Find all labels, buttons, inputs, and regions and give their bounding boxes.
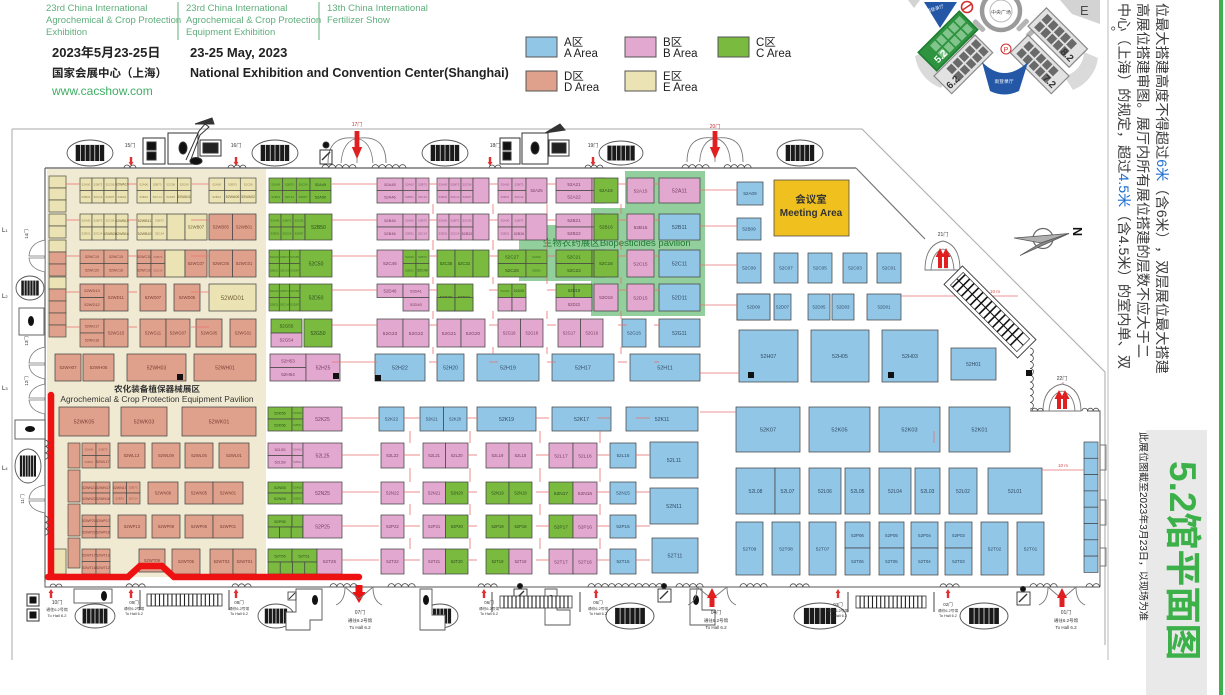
svg-text:52A00: 52A00 xyxy=(501,182,510,186)
svg-text:52A22: 52A22 xyxy=(567,195,581,200)
svg-text:14: 14 xyxy=(24,233,29,239)
svg-text:52WP13: 52WP13 xyxy=(124,524,141,529)
svg-text:52WH01: 52WH01 xyxy=(215,365,235,371)
svg-text:52B73: 52B73 xyxy=(94,219,103,223)
svg-text:52B31: 52B31 xyxy=(532,268,541,272)
svg-text:52D01: 52D01 xyxy=(878,305,891,310)
svg-text:52B31: 52B31 xyxy=(212,195,221,199)
svg-text:52L05: 52L05 xyxy=(851,489,865,495)
svg-text:52C40: 52C40 xyxy=(417,269,428,273)
svg-text:52B73: 52B73 xyxy=(129,486,138,490)
svg-text:52B73: 52B73 xyxy=(515,219,524,223)
svg-text:52D87: 52D87 xyxy=(166,195,175,199)
svg-text:52C15: 52C15 xyxy=(633,261,647,267)
svg-text:52D05: 52D05 xyxy=(813,305,826,310)
svg-text:52D22: 52D22 xyxy=(568,302,581,307)
svg-text:52WN05: 52WN05 xyxy=(191,491,208,496)
svg-text:52B73: 52B73 xyxy=(418,255,427,259)
svg-text:52C14: 52C14 xyxy=(129,497,138,501)
svg-text:52D25: 52D25 xyxy=(514,289,525,293)
svg-text:52B73: 52B73 xyxy=(154,255,163,259)
svg-text:11: 11 xyxy=(20,499,25,504)
svg-text:52L22: 52L22 xyxy=(386,453,399,458)
svg-text:National Exhibition and Conven: National Exhibition and Convention Cente… xyxy=(190,66,509,80)
svg-text:52A00: 52A00 xyxy=(82,219,91,223)
svg-text:52B31: 52B31 xyxy=(405,195,414,199)
svg-text:52A00: 52A00 xyxy=(293,486,302,490)
svg-text:52WT13: 52WT13 xyxy=(96,554,110,558)
svg-text:52P04: 52P04 xyxy=(918,533,931,538)
svg-text:52C22: 52C22 xyxy=(567,268,581,273)
svg-text:52WA10: 52WA10 xyxy=(177,195,191,199)
svg-text:52C16: 52C16 xyxy=(599,261,613,266)
svg-text:52C56: 52C56 xyxy=(463,182,472,186)
svg-text:52N21: 52N21 xyxy=(428,491,441,496)
svg-text:52D87: 52D87 xyxy=(106,195,115,199)
svg-text:19: 19 xyxy=(588,143,594,149)
svg-text:6.2: 6.2 xyxy=(1063,618,1070,623)
svg-text:B: B xyxy=(663,37,671,49)
svg-text:52B31: 52B31 xyxy=(439,232,448,236)
svg-text:52H22: 52H22 xyxy=(392,366,408,372)
svg-text:52WC11: 52WC11 xyxy=(137,255,151,259)
svg-text:52C14: 52C14 xyxy=(285,195,294,199)
svg-text:52G21: 52G21 xyxy=(442,331,457,337)
svg-text:52WL01: 52WL01 xyxy=(226,453,242,458)
svg-text:52A16: 52A16 xyxy=(599,188,613,193)
svg-text:52L21: 52L21 xyxy=(428,453,440,458)
svg-text:52B73: 52B73 xyxy=(283,219,292,223)
svg-text:52B31: 52B31 xyxy=(270,268,279,272)
svg-text:52C56: 52C56 xyxy=(106,219,115,223)
svg-text:52A15: 52A15 xyxy=(634,188,648,194)
svg-text:52A00: 52A00 xyxy=(82,182,91,186)
svg-text:08: 08 xyxy=(234,600,240,605)
svg-text:52G54: 52G54 xyxy=(280,338,294,343)
svg-text:23rd China International: 23rd China International xyxy=(46,3,147,14)
svg-text:52WT17: 52WT17 xyxy=(82,554,96,558)
svg-text:6.2: 6.2 xyxy=(713,618,720,623)
svg-text:52T15: 52T15 xyxy=(616,559,629,564)
svg-text:52WP21: 52WP21 xyxy=(82,519,96,523)
svg-text:52P06: 52P06 xyxy=(851,533,864,538)
svg-text:52L58: 52L58 xyxy=(274,459,286,464)
svg-text:52D07: 52D07 xyxy=(776,305,789,310)
svg-text:C: C xyxy=(756,37,764,49)
svg-text:52WC05: 52WC05 xyxy=(213,261,230,266)
svg-text:52L06: 52L06 xyxy=(818,489,832,495)
svg-text:52K17: 52K17 xyxy=(574,417,589,423)
svg-text:52D40: 52D40 xyxy=(410,302,423,307)
svg-text:52L15: 52L15 xyxy=(617,453,630,458)
svg-text:52L04: 52L04 xyxy=(888,489,902,495)
svg-text:52B73: 52B73 xyxy=(280,289,289,293)
svg-text:52N19: 52N19 xyxy=(491,491,504,496)
svg-text:52WG07: 52WG07 xyxy=(170,331,187,336)
svg-text:52B73: 52B73 xyxy=(515,182,524,186)
svg-text:52WN01: 52WN01 xyxy=(220,491,237,496)
svg-text:52WP20: 52WP20 xyxy=(82,531,96,535)
svg-text:13th China International: 13th China International xyxy=(327,3,428,14)
svg-text:52B73: 52B73 xyxy=(418,219,427,223)
svg-text:52A00: 52A00 xyxy=(501,219,510,223)
svg-text:52T11: 52T11 xyxy=(668,554,683,560)
svg-text:52G23: 52G23 xyxy=(383,331,398,337)
svg-text:52WT12: 52WT12 xyxy=(96,566,110,570)
svg-text:52C56: 52C56 xyxy=(290,289,299,293)
svg-text:52B31: 52B31 xyxy=(501,232,510,236)
svg-text:52B31: 52B31 xyxy=(293,460,302,464)
svg-text:52WP16: 52WP16 xyxy=(96,531,110,535)
svg-text:52WN18: 52WN18 xyxy=(96,497,110,501)
svg-text:52T18: 52T18 xyxy=(515,559,528,564)
svg-text:52WK03: 52WK03 xyxy=(134,420,155,426)
svg-text:52A00: 52A00 xyxy=(405,182,414,186)
svg-text:52H07: 52H07 xyxy=(761,354,777,360)
svg-text:23: 23 xyxy=(1137,540,1148,552)
svg-text:6.2: 6.2 xyxy=(54,607,60,612)
svg-text:03: 03 xyxy=(833,602,839,607)
svg-text:52WD01: 52WD01 xyxy=(221,296,245,302)
svg-text:Agrochemical & Crop Protection: Agrochemical & Crop Protection Equipment… xyxy=(60,394,254,404)
svg-text:52D87: 52D87 xyxy=(290,268,299,272)
svg-text:02: 02 xyxy=(943,602,949,607)
svg-text:09: 09 xyxy=(129,600,135,605)
svg-text:52WH05: 52WH05 xyxy=(90,365,108,370)
svg-text:52B45: 52B45 xyxy=(384,218,396,223)
svg-text:52B31: 52B31 xyxy=(270,302,279,306)
svg-text:52H01: 52H01 xyxy=(966,362,981,368)
svg-text:To Hall 6.2: To Hall 6.2 xyxy=(230,612,248,616)
svg-text:52G11: 52G11 xyxy=(672,331,687,337)
svg-text:52A49: 52A49 xyxy=(315,182,327,187)
svg-text:52P22: 52P22 xyxy=(386,524,399,529)
svg-text:52B31: 52B31 xyxy=(293,423,302,427)
svg-text:52C14: 52C14 xyxy=(153,195,162,199)
svg-text:52L55: 52L55 xyxy=(274,447,286,452)
svg-text:52WD13: 52WD13 xyxy=(84,288,100,293)
svg-text:52A45: 52A45 xyxy=(384,182,396,187)
svg-text:52B31: 52B31 xyxy=(439,195,448,199)
svg-text:52WL17: 52WL17 xyxy=(96,460,109,464)
svg-text:52WN21: 52WN21 xyxy=(82,486,96,490)
svg-text:52L17: 52L17 xyxy=(554,453,568,459)
svg-text:52L07: 52L07 xyxy=(781,489,795,495)
svg-text:6: 6 xyxy=(1153,210,1169,218)
svg-text:52C01: 52C01 xyxy=(882,266,896,271)
svg-text:52WP01: 52WP01 xyxy=(220,524,237,529)
svg-text:52D46: 52D46 xyxy=(384,288,397,293)
svg-text:2023: 2023 xyxy=(1137,492,1148,515)
svg-text:52L25: 52L25 xyxy=(316,453,330,459)
svg-text:52K11: 52K11 xyxy=(655,417,670,423)
svg-text:04: 04 xyxy=(711,610,717,616)
svg-text:52WC01: 52WC01 xyxy=(236,261,253,266)
svg-text:52N20: 52N20 xyxy=(451,491,464,496)
svg-text:5.2: 5.2 xyxy=(1162,461,1203,512)
svg-text:52C14: 52C14 xyxy=(515,195,524,199)
svg-text:6: 6 xyxy=(1153,159,1169,167)
svg-text:52B31: 52B31 xyxy=(405,268,414,272)
svg-text:Equipment Exhibition: Equipment Exhibition xyxy=(186,27,275,38)
svg-text:52P05: 52P05 xyxy=(885,533,898,538)
svg-text:52B22: 52B22 xyxy=(567,231,581,236)
svg-text:52C26: 52C26 xyxy=(505,268,519,273)
svg-text:52P25: 52P25 xyxy=(315,524,330,530)
svg-text:52B31: 52B31 xyxy=(85,460,94,464)
svg-text:52A25: 52A25 xyxy=(530,188,543,193)
svg-text:52H17: 52H17 xyxy=(575,366,591,372)
svg-text:52T16: 52T16 xyxy=(578,559,592,565)
svg-text:52D87: 52D87 xyxy=(290,302,299,306)
svg-text:52L01: 52L01 xyxy=(1008,489,1022,495)
svg-text:52B46: 52B46 xyxy=(384,231,396,236)
svg-text:52H11: 52H11 xyxy=(657,366,672,372)
svg-text:52N11: 52N11 xyxy=(666,504,681,510)
svg-text:52WB15: 52WB15 xyxy=(115,219,129,223)
svg-text:52A00: 52A00 xyxy=(439,182,448,186)
svg-text:6.2: 6.2 xyxy=(357,618,364,623)
svg-text:52B73: 52B73 xyxy=(418,182,427,186)
svg-text:52WN15: 52WN15 xyxy=(113,486,127,490)
svg-text:52C14: 52C14 xyxy=(94,195,103,199)
svg-text:52G55: 52G55 xyxy=(280,324,294,329)
svg-text:52B73: 52B73 xyxy=(451,219,460,223)
svg-text:6.2: 6.2 xyxy=(835,609,840,613)
svg-text:52C56: 52C56 xyxy=(463,219,472,223)
svg-text:52G20: 52G20 xyxy=(466,331,481,337)
svg-text:52G22: 52G22 xyxy=(409,331,424,337)
svg-text:Exhibition: Exhibition xyxy=(46,27,87,38)
svg-text:52N18: 52N18 xyxy=(514,491,527,496)
svg-text:52WB11: 52WB11 xyxy=(138,219,152,223)
svg-text:D: D xyxy=(564,71,572,83)
svg-text:52D19: 52D19 xyxy=(568,288,581,293)
svg-text:52D87: 52D87 xyxy=(299,195,308,199)
svg-text:52B73: 52B73 xyxy=(451,182,460,186)
svg-text:52P15: 52P15 xyxy=(616,524,630,529)
svg-text:6.2: 6.2 xyxy=(236,607,241,611)
svg-text:52C14: 52C14 xyxy=(280,302,289,306)
svg-text:52A00: 52A00 xyxy=(139,182,148,186)
svg-text:52P16: 52P16 xyxy=(578,524,592,530)
svg-text:A: A xyxy=(564,37,572,49)
svg-text:To Hall 6.2: To Hall 6.2 xyxy=(480,612,498,616)
svg-text:5: 5 xyxy=(94,45,101,60)
svg-text:52C50: 52C50 xyxy=(309,261,324,267)
svg-text:52N25: 52N25 xyxy=(315,491,330,497)
svg-text:52D50: 52D50 xyxy=(309,295,324,301)
svg-text:52B73: 52B73 xyxy=(99,447,108,451)
svg-text:52N16: 52N16 xyxy=(578,491,592,497)
svg-text:52A00: 52A00 xyxy=(439,219,448,223)
svg-text:52G50: 52G50 xyxy=(310,331,325,337)
svg-text:Fertilizer Show: Fertilizer Show xyxy=(327,15,390,26)
svg-text:52T09: 52T09 xyxy=(743,546,757,552)
svg-text:52C03: 52C03 xyxy=(848,266,862,271)
svg-text:52D87: 52D87 xyxy=(295,232,304,236)
svg-text:52WC15: 52WC15 xyxy=(109,255,123,259)
svg-text:52H03: 52H03 xyxy=(902,354,918,360)
svg-text:52L11: 52L11 xyxy=(667,458,682,464)
svg-text:52E61: 52E61 xyxy=(118,195,127,199)
svg-text:52B31: 52B31 xyxy=(271,232,280,236)
svg-text:52C27: 52C27 xyxy=(505,255,519,260)
svg-text:52K01: 52K01 xyxy=(971,428,987,434)
svg-text:52B73: 52B73 xyxy=(153,182,162,186)
svg-text:52T05: 52T05 xyxy=(885,559,898,564)
svg-text:Agrochemical & Crop Protection: Agrochemical & Crop Protection xyxy=(46,15,181,26)
svg-text:52A00: 52A00 xyxy=(293,411,302,415)
svg-text:52WL05: 52WL05 xyxy=(191,453,207,458)
svg-text:52WB10: 52WB10 xyxy=(138,232,152,236)
svg-text:52B31: 52B31 xyxy=(82,232,91,236)
svg-text:52N56: 52N56 xyxy=(274,496,287,501)
svg-text:52D41: 52D41 xyxy=(410,288,423,293)
svg-text:23-25 May, 2023: 23-25 May, 2023 xyxy=(190,45,287,60)
svg-text:52L20: 52L20 xyxy=(451,453,463,458)
svg-text:52A09: 52A09 xyxy=(743,191,757,196)
svg-text:52A00: 52A00 xyxy=(532,255,541,259)
svg-text:52T25: 52T25 xyxy=(323,559,336,564)
svg-text:52C14: 52C14 xyxy=(451,232,460,236)
svg-text:52B21: 52B21 xyxy=(567,218,581,223)
svg-text:52N55: 52N55 xyxy=(274,485,287,490)
svg-text:52L08: 52L08 xyxy=(749,489,763,495)
svg-text:52G18: 52G18 xyxy=(526,331,539,336)
svg-text:52WA19: 52WA19 xyxy=(115,183,129,187)
svg-text:52WA06: 52WA06 xyxy=(226,195,240,199)
svg-text:12: 12 xyxy=(24,380,29,386)
svg-text:52B32: 52B32 xyxy=(462,232,472,236)
svg-text:52C14: 52C14 xyxy=(280,268,289,272)
svg-text:52H25: 52H25 xyxy=(316,365,331,371)
svg-text:52T07: 52T07 xyxy=(816,546,830,552)
svg-text:Meeting Area: Meeting Area xyxy=(780,208,843,219)
svg-text:10 m: 10 m xyxy=(1058,463,1068,468)
svg-text:52K07: 52K07 xyxy=(760,428,776,434)
svg-text:52B31: 52B31 xyxy=(271,195,280,199)
svg-text:52C56: 52C56 xyxy=(295,219,304,223)
svg-text:52A21: 52A21 xyxy=(567,182,581,187)
svg-text:4.5: 4.5 xyxy=(1115,173,1131,193)
svg-text:52WC19: 52WC19 xyxy=(85,255,99,259)
svg-text:52WN22: 52WN22 xyxy=(82,497,96,501)
svg-text:52C14: 52C14 xyxy=(155,232,164,236)
svg-text:52A11: 52A11 xyxy=(672,189,687,195)
svg-text:52C56: 52C56 xyxy=(244,182,253,186)
svg-text:52WH03: 52WH03 xyxy=(147,365,167,371)
svg-text:52WC10: 52WC10 xyxy=(137,269,151,273)
svg-text:52C14: 52C14 xyxy=(94,232,103,236)
svg-text:www.cacshow.com: www.cacshow.com xyxy=(51,84,153,98)
svg-text:52T17: 52T17 xyxy=(554,559,568,565)
svg-text:52WD12: 52WD12 xyxy=(84,302,100,307)
svg-text:10 m: 10 m xyxy=(990,289,1000,294)
svg-text:52K25: 52K25 xyxy=(315,417,330,423)
svg-text:52B73: 52B73 xyxy=(94,182,103,186)
svg-text:52WT16: 52WT16 xyxy=(82,566,96,570)
svg-text:52P03: 52P03 xyxy=(952,533,965,538)
svg-text:52WT05: 52WT05 xyxy=(178,559,194,564)
svg-text:20: 20 xyxy=(710,124,716,130)
svg-text:E: E xyxy=(1080,3,1089,18)
svg-text:To Hall 6.2: To Hall 6.2 xyxy=(939,614,957,618)
svg-text:52A00: 52A00 xyxy=(405,255,414,259)
svg-text:52B31: 52B31 xyxy=(501,195,510,199)
svg-text:52C14: 52C14 xyxy=(418,232,427,236)
svg-text:52B31: 52B31 xyxy=(82,195,91,199)
svg-text:52H54: 52H54 xyxy=(281,372,295,377)
svg-text:15: 15 xyxy=(125,143,131,149)
svg-text:52L16: 52L16 xyxy=(578,453,592,459)
svg-text:To Hall 6.2: To Hall 6.2 xyxy=(48,613,68,618)
svg-text:To Hall 6.2: To Hall 6.2 xyxy=(1055,625,1077,630)
svg-text:05: 05 xyxy=(593,600,599,605)
svg-text:52WB07: 52WB07 xyxy=(188,225,205,230)
svg-text:52C14: 52C14 xyxy=(451,195,460,199)
svg-text:52B26: 52B26 xyxy=(514,232,524,236)
svg-text:6.2: 6.2 xyxy=(595,607,600,611)
svg-text:To Hall 6.2: To Hall 6.2 xyxy=(589,612,607,616)
svg-text:52G19: 52G19 xyxy=(503,331,516,336)
svg-text:52H19: 52H19 xyxy=(500,366,516,372)
svg-text:52WG16: 52WG16 xyxy=(85,338,99,342)
svg-text:52WB01: 52WB01 xyxy=(236,225,253,230)
svg-text:23rd China International: 23rd China International xyxy=(186,3,287,14)
svg-text:52K03: 52K03 xyxy=(901,428,917,434)
svg-text:52T21: 52T21 xyxy=(428,559,441,564)
svg-text:52K20: 52K20 xyxy=(449,417,462,422)
svg-text:To Hall 6.2: To Hall 6.2 xyxy=(349,625,371,630)
svg-text:To Hall 6.2: To Hall 6.2 xyxy=(829,614,847,618)
svg-text:6.2: 6.2 xyxy=(945,609,950,613)
svg-text:52K56: 52K56 xyxy=(274,423,286,428)
svg-text:52C56: 52C56 xyxy=(290,255,299,259)
svg-text:52T22: 52T22 xyxy=(386,559,399,564)
svg-text:52C35: 52C35 xyxy=(440,261,453,266)
svg-text:52K05: 52K05 xyxy=(831,428,847,434)
svg-text:52T06: 52T06 xyxy=(851,559,864,564)
svg-text:52C46: 52C46 xyxy=(383,261,397,266)
svg-text:52D87: 52D87 xyxy=(463,195,472,199)
svg-text:52N17: 52N17 xyxy=(554,491,568,497)
svg-text:52A00: 52A00 xyxy=(270,255,279,259)
svg-text:52A46: 52A46 xyxy=(384,194,396,199)
svg-text:52C09: 52C09 xyxy=(742,266,756,271)
svg-text:52D09: 52D09 xyxy=(747,305,760,310)
svg-text:N: N xyxy=(1070,227,1084,236)
svg-text:52P17: 52P17 xyxy=(554,524,568,530)
svg-text:52WT03: 52WT03 xyxy=(214,559,230,564)
svg-text:52T08: 52T08 xyxy=(779,546,793,552)
svg-text:52WD05: 52WD05 xyxy=(179,295,196,300)
svg-text:52C56: 52C56 xyxy=(166,182,175,186)
svg-text:52D11: 52D11 xyxy=(672,296,687,302)
svg-text:52WD07: 52WD07 xyxy=(145,295,162,300)
svg-text:52K21: 52K21 xyxy=(426,417,439,422)
svg-text:52B73: 52B73 xyxy=(285,182,294,186)
svg-text:52D03: 52D03 xyxy=(837,305,850,310)
svg-text:52H53: 52H53 xyxy=(281,359,295,364)
svg-text:52K19: 52K19 xyxy=(499,417,514,423)
svg-text:52D30: 52D30 xyxy=(180,182,189,186)
svg-text:52WA02: 52WA02 xyxy=(241,195,255,199)
svg-text:01: 01 xyxy=(1061,610,1067,616)
svg-text:07: 07 xyxy=(355,610,361,616)
svg-text:52D16: 52D16 xyxy=(599,295,613,300)
svg-text:52G15: 52G15 xyxy=(627,331,641,336)
